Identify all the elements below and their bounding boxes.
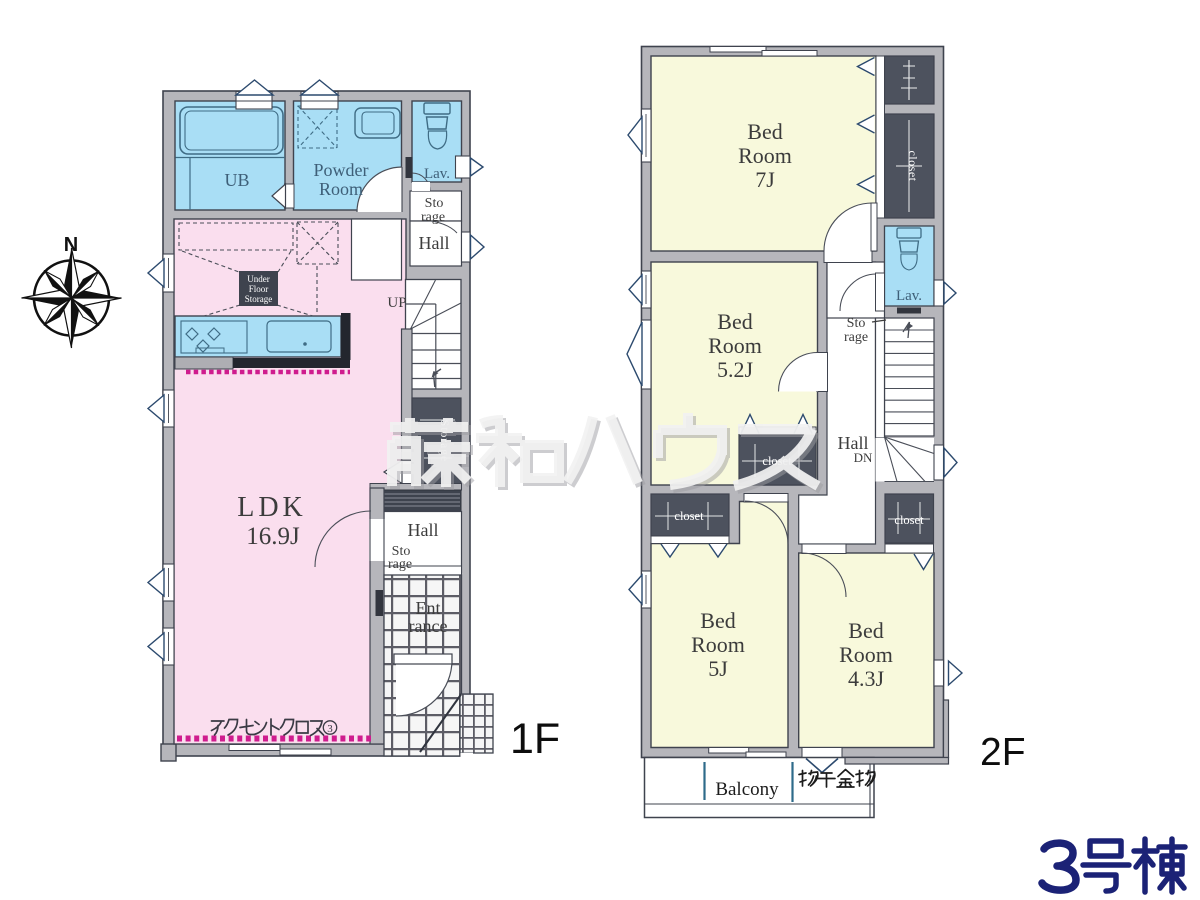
svg-text:LDK: LDK: [237, 492, 307, 523]
svg-text:UB: UB: [224, 170, 249, 190]
svg-text:UP: UP: [387, 295, 406, 311]
svg-text:rage: rage: [844, 330, 868, 345]
svg-text:7J: 7J: [755, 167, 775, 192]
svg-text:Powder: Powder: [314, 160, 369, 180]
svg-text:Lav.: Lav.: [424, 166, 450, 182]
svg-text:5J: 5J: [708, 656, 728, 681]
svg-text:rage: rage: [388, 557, 412, 572]
svg-text:4.3J: 4.3J: [848, 666, 885, 691]
svg-text:Ent: Ent: [416, 598, 441, 618]
svg-text:rance: rance: [409, 616, 448, 636]
svg-text:Balcony: Balcony: [715, 779, 779, 800]
svg-text:DN: DN: [854, 450, 873, 465]
svg-text:Bed: Bed: [747, 119, 782, 144]
svg-text:5.2J: 5.2J: [717, 357, 754, 382]
svg-text:Sto: Sto: [847, 316, 866, 331]
svg-text:Floor: Floor: [249, 284, 269, 294]
svg-text:Hall: Hall: [408, 520, 439, 540]
svg-text:Hall: Hall: [419, 233, 450, 253]
svg-text:Room: Room: [738, 143, 792, 168]
svg-text:Sto: Sto: [425, 196, 444, 211]
svg-text:Room: Room: [319, 179, 363, 199]
svg-text:16.9J: 16.9J: [246, 523, 300, 550]
svg-text:Bed: Bed: [848, 618, 883, 643]
svg-text:Lav.: Lav.: [896, 288, 922, 304]
svg-text:Storage: Storage: [245, 294, 273, 304]
svg-text:Room: Room: [691, 632, 745, 657]
svg-text:3: 3: [327, 723, 333, 735]
svg-text:Bed: Bed: [700, 608, 735, 633]
svg-text:Bed: Bed: [717, 309, 752, 334]
svg-text:Under: Under: [247, 274, 270, 284]
svg-text:rage: rage: [421, 210, 445, 225]
svg-text:Room: Room: [839, 642, 893, 667]
svg-text:Room: Room: [708, 333, 762, 358]
svg-text:2F: 2F: [980, 731, 1026, 774]
svg-text:1F: 1F: [510, 715, 560, 763]
svg-text:N: N: [64, 234, 78, 256]
